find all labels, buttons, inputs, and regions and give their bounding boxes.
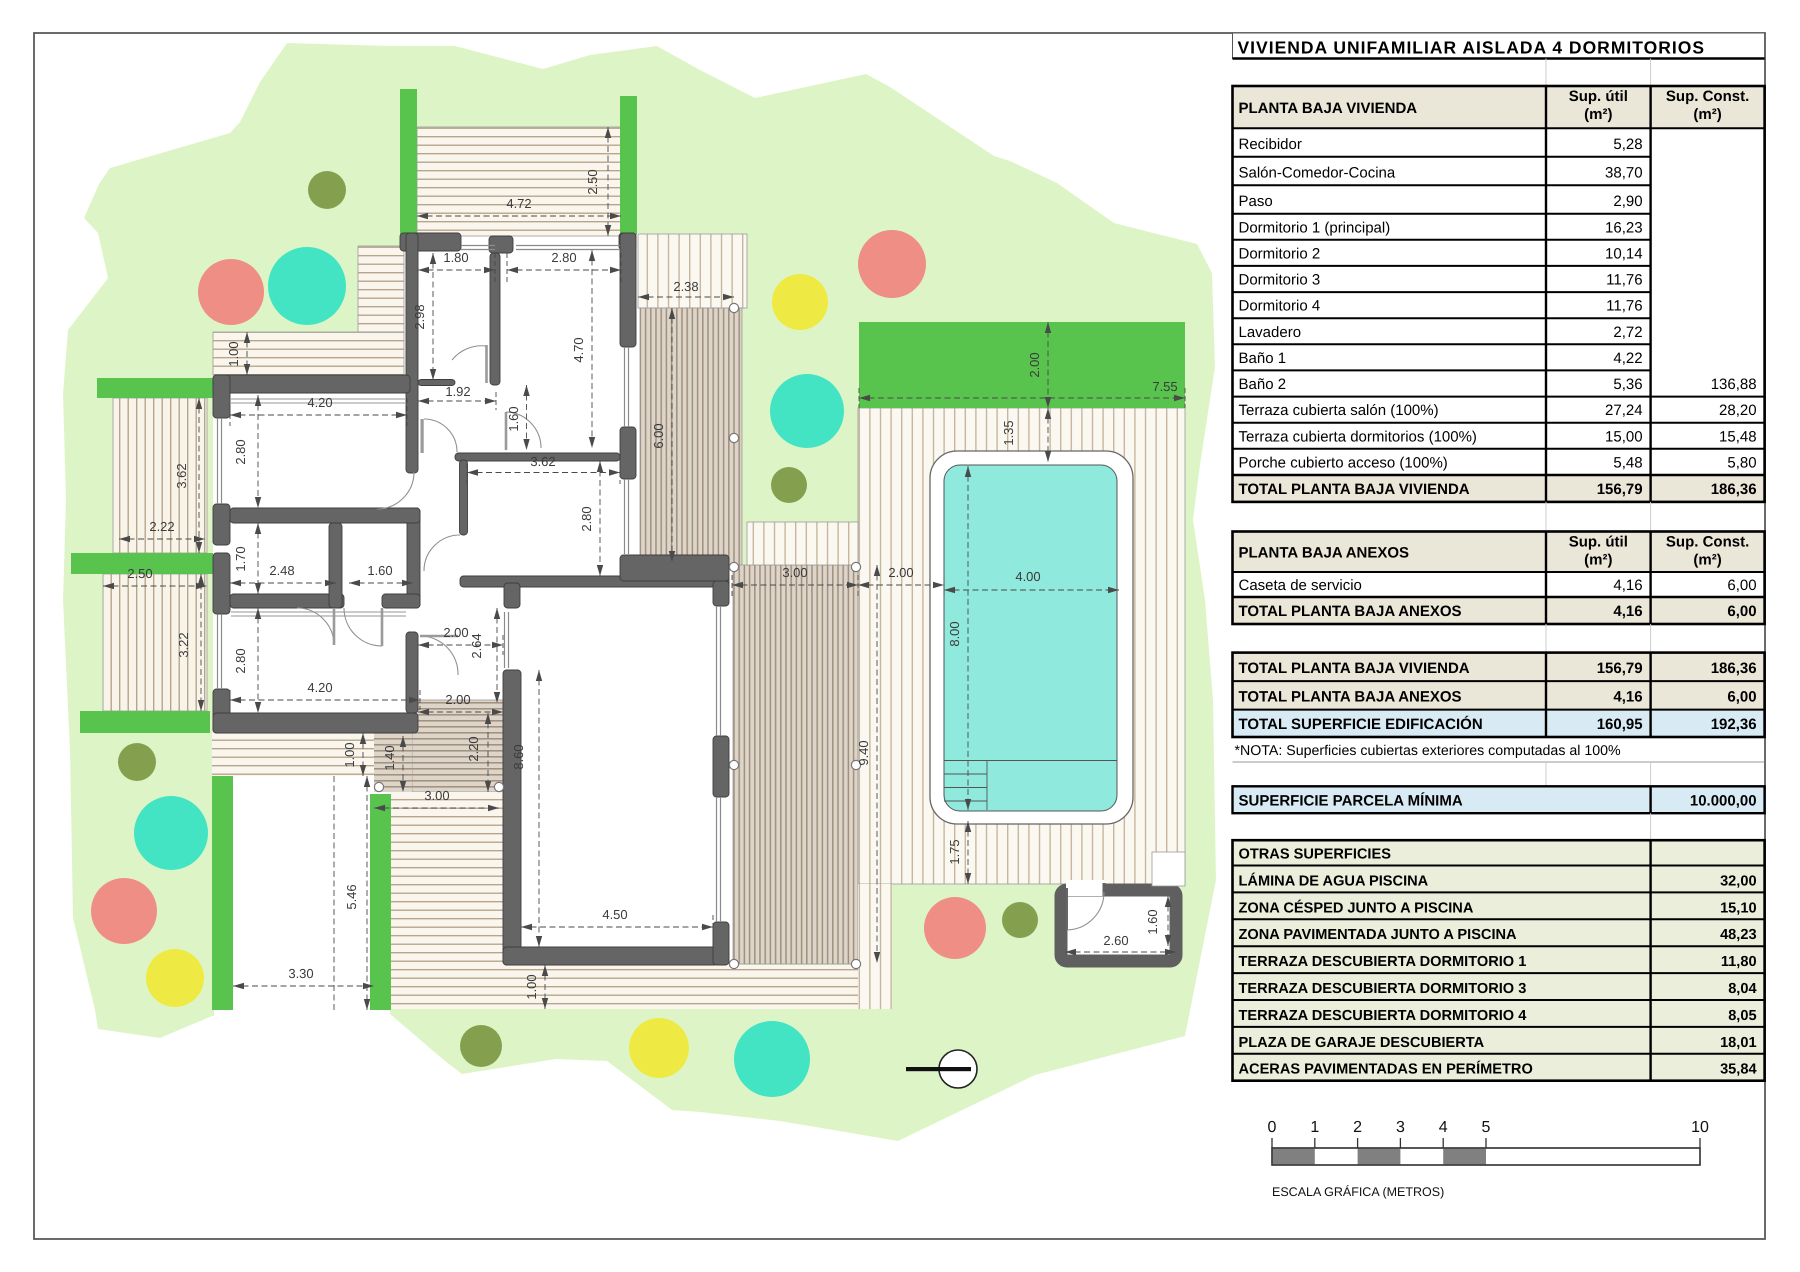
- svg-text:2,90: 2,90: [1613, 193, 1642, 210]
- svg-text:Sup. Const.: Sup. Const.: [1666, 88, 1749, 105]
- svg-text:3.62: 3.62: [530, 454, 555, 469]
- svg-text:0: 0: [1268, 1119, 1277, 1136]
- svg-text:(m²): (m²): [1693, 552, 1721, 569]
- svg-text:1.75: 1.75: [947, 839, 962, 864]
- svg-text:6,00: 6,00: [1727, 603, 1756, 620]
- svg-text:ZONA CÉSPED JUNTO A PISCINA: ZONA CÉSPED JUNTO A PISCINA: [1239, 899, 1474, 916]
- svg-text:8,05: 8,05: [1728, 1008, 1756, 1024]
- svg-text:3.00: 3.00: [424, 788, 449, 803]
- svg-text:9.40: 9.40: [856, 740, 871, 765]
- svg-text:2.00: 2.00: [1027, 352, 1042, 377]
- svg-text:3.30: 3.30: [288, 966, 313, 981]
- svg-text:5,48: 5,48: [1613, 455, 1642, 472]
- svg-text:Sup. útil: Sup. útil: [1569, 534, 1628, 551]
- svg-text:3: 3: [1396, 1119, 1405, 1136]
- svg-text:Terraza cubierta dormitorios (: Terraza cubierta dormitorios (100%): [1239, 428, 1477, 445]
- svg-text:Lavadero: Lavadero: [1239, 324, 1302, 341]
- svg-text:Dormitorio 2: Dormitorio 2: [1239, 245, 1321, 262]
- svg-text:4,16: 4,16: [1613, 689, 1642, 706]
- svg-text:TOTAL PLANTA BAJA VIVIENDA: TOTAL PLANTA BAJA VIVIENDA: [1239, 481, 1470, 498]
- svg-text:4,16: 4,16: [1613, 577, 1642, 594]
- svg-text:2.50: 2.50: [585, 169, 600, 194]
- svg-text:ACERAS PAVIMENTADAS EN PERÍMET: ACERAS PAVIMENTADAS EN PERÍMETRO: [1239, 1061, 1533, 1078]
- svg-text:4.20: 4.20: [307, 395, 332, 410]
- svg-text:4.20: 4.20: [307, 680, 332, 695]
- svg-text:16,23: 16,23: [1605, 219, 1643, 236]
- svg-text:5,28: 5,28: [1613, 136, 1642, 153]
- svg-text:1.60: 1.60: [1145, 909, 1160, 934]
- svg-text:10: 10: [1691, 1119, 1709, 1136]
- svg-text:4,22: 4,22: [1613, 350, 1642, 367]
- svg-text:1.40: 1.40: [382, 745, 397, 770]
- svg-text:1.70: 1.70: [233, 546, 248, 571]
- svg-text:2.50: 2.50: [127, 566, 152, 581]
- svg-text:6,00: 6,00: [1727, 689, 1756, 706]
- svg-text:2.80: 2.80: [233, 439, 248, 464]
- svg-text:2.98: 2.98: [412, 304, 427, 329]
- svg-text:32,00: 32,00: [1720, 873, 1757, 889]
- svg-text:1.00: 1.00: [524, 974, 539, 999]
- svg-text:186,36: 186,36: [1711, 481, 1757, 498]
- svg-text:Salón-Comedor-Cocina: Salón-Comedor-Cocina: [1239, 165, 1396, 182]
- svg-text:Dormitorio 3: Dormitorio 3: [1239, 272, 1321, 289]
- svg-text:1.00: 1.00: [342, 742, 357, 767]
- svg-text:186,36: 186,36: [1711, 660, 1757, 677]
- svg-text:35,84: 35,84: [1720, 1062, 1757, 1078]
- svg-text:10,14: 10,14: [1605, 245, 1643, 262]
- svg-text:3.62: 3.62: [174, 463, 189, 488]
- svg-text:4: 4: [1439, 1119, 1448, 1136]
- svg-text:ZONA PAVIMENTADA JUNTO A PISCI: ZONA PAVIMENTADA JUNTO A PISCINA: [1239, 927, 1518, 943]
- svg-text:28,20: 28,20: [1719, 402, 1757, 419]
- svg-text:PLAZA DE GARAJE DESCUBIERTA: PLAZA DE GARAJE DESCUBIERTA: [1239, 1035, 1485, 1051]
- svg-text:1: 1: [1310, 1119, 1319, 1136]
- svg-text:2.00: 2.00: [443, 625, 468, 640]
- svg-text:Baño 2: Baño 2: [1239, 376, 1287, 393]
- svg-text:15,10: 15,10: [1720, 900, 1757, 916]
- svg-text:1.92: 1.92: [445, 384, 470, 399]
- svg-text:11,80: 11,80: [1721, 954, 1757, 970]
- svg-text:2.00: 2.00: [445, 692, 470, 707]
- svg-text:27,24: 27,24: [1605, 402, 1643, 419]
- svg-text:4,16: 4,16: [1613, 603, 1642, 620]
- svg-text:4.00: 4.00: [1015, 569, 1040, 584]
- svg-text:3.22: 3.22: [176, 632, 191, 657]
- svg-text:Sup. útil: Sup. útil: [1569, 88, 1628, 105]
- svg-text:Paso: Paso: [1239, 193, 1273, 210]
- svg-text:5,36: 5,36: [1613, 376, 1642, 393]
- svg-text:15,48: 15,48: [1719, 428, 1757, 445]
- svg-text:TOTAL SUPERFICIE EDIFICACIÓN: TOTAL SUPERFICIE EDIFICACIÓN: [1239, 715, 1483, 733]
- svg-text:48,23: 48,23: [1720, 927, 1757, 943]
- svg-text:LÁMINA DE AGUA PISCINA: LÁMINA DE AGUA PISCINA: [1239, 872, 1429, 889]
- svg-text:1.35: 1.35: [1001, 420, 1016, 445]
- svg-text:11,76: 11,76: [1606, 272, 1642, 289]
- svg-text:Dormitorio 1 (principal): Dormitorio 1 (principal): [1239, 219, 1391, 236]
- svg-text:TERRAZA DESCUBIERTA DORMITORIO: TERRAZA DESCUBIERTA DORMITORIO 3: [1239, 981, 1527, 997]
- svg-text:156,79: 156,79: [1597, 660, 1643, 677]
- svg-text:Sup. Const.: Sup. Const.: [1666, 534, 1749, 551]
- svg-text:6.00: 6.00: [651, 423, 666, 448]
- svg-text:2.80: 2.80: [579, 506, 594, 531]
- svg-text:7.55: 7.55: [1152, 379, 1177, 394]
- svg-text:38,70: 38,70: [1605, 165, 1643, 182]
- svg-text:(m²): (m²): [1584, 106, 1612, 123]
- svg-text:PLANTA BAJA ANEXOS: PLANTA BAJA ANEXOS: [1239, 545, 1410, 562]
- svg-text:2.48: 2.48: [269, 563, 294, 578]
- svg-text:136,88: 136,88: [1711, 376, 1757, 393]
- svg-text:4.50: 4.50: [602, 907, 627, 922]
- svg-text:2.60: 2.60: [1103, 933, 1128, 948]
- svg-text:OTRAS SUPERFICIES: OTRAS SUPERFICIES: [1239, 847, 1392, 863]
- svg-text:1.60: 1.60: [367, 563, 392, 578]
- svg-text:2.22: 2.22: [149, 519, 174, 534]
- svg-text:TOTAL PLANTA BAJA ANEXOS: TOTAL PLANTA BAJA ANEXOS: [1239, 603, 1462, 620]
- svg-text:Baño 1: Baño 1: [1239, 350, 1287, 367]
- svg-text:2.00: 2.00: [888, 565, 913, 580]
- svg-text:8.60: 8.60: [511, 744, 526, 769]
- svg-text:1.60: 1.60: [506, 406, 521, 431]
- svg-text:VIVIENDA UNIFAMILIAR AISLADA 4: VIVIENDA UNIFAMILIAR AISLADA 4 DORMITORI…: [1238, 38, 1706, 58]
- svg-text:8,04: 8,04: [1728, 981, 1757, 997]
- svg-text:2,72: 2,72: [1613, 324, 1642, 341]
- svg-text:2.80: 2.80: [233, 648, 248, 673]
- svg-text:8.00: 8.00: [947, 621, 962, 646]
- svg-text:Terraza cubierta salón (100%): Terraza cubierta salón (100%): [1239, 402, 1439, 419]
- svg-text:4.72: 4.72: [506, 196, 531, 211]
- svg-text:1.80: 1.80: [443, 250, 468, 265]
- svg-text:2.38: 2.38: [673, 279, 698, 294]
- svg-text:(m²): (m²): [1693, 106, 1721, 123]
- svg-text:2: 2: [1353, 1119, 1362, 1136]
- svg-text:Caseta de servicio: Caseta de servicio: [1239, 577, 1362, 594]
- svg-text:5: 5: [1482, 1119, 1491, 1136]
- svg-text:5.46: 5.46: [344, 884, 359, 909]
- svg-text:10.000,00: 10.000,00: [1690, 793, 1757, 810]
- svg-text:TOTAL PLANTA BAJA ANEXOS: TOTAL PLANTA BAJA ANEXOS: [1239, 689, 1462, 706]
- svg-text:18,01: 18,01: [1720, 1035, 1757, 1051]
- svg-text:2.64: 2.64: [469, 633, 484, 658]
- svg-text:5,80: 5,80: [1727, 455, 1756, 472]
- svg-text:SUPERFICIE PARCELA MÍNIMA: SUPERFICIE PARCELA MÍNIMA: [1239, 792, 1463, 810]
- svg-text:Recibidor: Recibidor: [1239, 136, 1302, 153]
- svg-text:TOTAL PLANTA BAJA VIVIENDA: TOTAL PLANTA BAJA VIVIENDA: [1239, 660, 1470, 677]
- svg-text:(m²): (m²): [1584, 552, 1612, 569]
- svg-text:15,00: 15,00: [1605, 428, 1643, 445]
- svg-text:2.20: 2.20: [466, 736, 481, 761]
- svg-text:PLANTA BAJA VIVIENDA: PLANTA BAJA VIVIENDA: [1239, 100, 1418, 117]
- svg-text:TERRAZA DESCUBIERTA DORMITORIO: TERRAZA DESCUBIERTA DORMITORIO 4: [1239, 1008, 1528, 1024]
- svg-text:*NOTA: Superficies cubiertas e: *NOTA: Superficies cubiertas exteriores …: [1235, 743, 1622, 759]
- svg-text:4.70: 4.70: [571, 337, 586, 362]
- svg-text:TERRAZA DESCUBIERTA DORMITORIO: TERRAZA DESCUBIERTA DORMITORIO 1: [1239, 954, 1527, 970]
- svg-text:160,95: 160,95: [1597, 716, 1643, 733]
- svg-text:Dormitorio 4: Dormitorio 4: [1239, 298, 1321, 315]
- svg-text:11,76: 11,76: [1606, 298, 1642, 315]
- svg-text:192,36: 192,36: [1711, 716, 1757, 733]
- svg-text:6,00: 6,00: [1727, 577, 1756, 594]
- svg-text:1.00: 1.00: [226, 341, 241, 366]
- svg-text:ESCALA GRÁFICA (METROS): ESCALA GRÁFICA (METROS): [1272, 1185, 1444, 1199]
- svg-text:2.80: 2.80: [551, 250, 576, 265]
- svg-text:156,79: 156,79: [1597, 481, 1643, 498]
- svg-text:Porche cubierto acceso (100%): Porche cubierto acceso (100%): [1239, 455, 1448, 472]
- svg-text:3.00: 3.00: [782, 565, 807, 580]
